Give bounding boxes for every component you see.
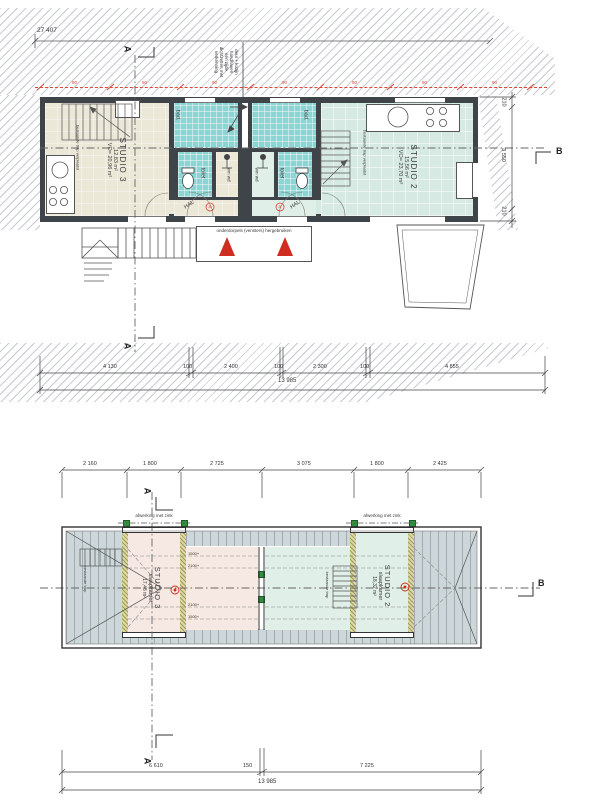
dormer1-window-top bbox=[122, 527, 186, 533]
wmwd1-label: wm wd bbox=[227, 167, 232, 181]
wall-note: deur + kozijn handhaven één zijde dichtz… bbox=[208, 25, 246, 99]
toilet1-room bbox=[178, 152, 212, 197]
zinc-marker bbox=[123, 520, 130, 527]
dim-label: 1 800 bbox=[370, 461, 384, 467]
dim-label: 150 bbox=[243, 763, 252, 769]
dim-label: 3 550 bbox=[500, 148, 506, 162]
section-a-roof-top: A bbox=[142, 488, 152, 495]
wall-note-line: dichtzetten met bbox=[220, 47, 225, 78]
window-right-wall bbox=[472, 163, 479, 197]
dim-label: 4 855 bbox=[445, 364, 459, 370]
room-sub: slaapkamer bbox=[378, 572, 384, 600]
studio2-label: STUDIO 2 15,56 m² VO= 23,70 m² bbox=[391, 122, 425, 212]
red-dim-label: 90 bbox=[492, 80, 497, 85]
dim-label: 100 bbox=[274, 364, 283, 370]
red-dim-label: 90 bbox=[352, 80, 357, 85]
height-mark: 1500+ bbox=[188, 614, 199, 619]
niche-right bbox=[456, 162, 473, 199]
dim-label: 2 425 bbox=[433, 461, 447, 467]
site-dim-label: 27 407 bbox=[37, 27, 57, 34]
entrance-stairs bbox=[82, 228, 196, 281]
wall-note-line: handhaven bbox=[230, 51, 235, 73]
hatch-band-top bbox=[0, 8, 555, 95]
door-hal2 bbox=[277, 216, 307, 222]
hatch-band-bottom bbox=[0, 343, 548, 402]
zinc-note-left: afwerking met zink bbox=[118, 513, 190, 518]
door-hal1 bbox=[185, 216, 215, 222]
wall-marker bbox=[258, 596, 265, 603]
hal2-floor bbox=[252, 200, 316, 216]
roof-end-left bbox=[66, 531, 128, 644]
dim-label: 3 075 bbox=[297, 461, 311, 467]
kitchen-counter-s3 bbox=[46, 155, 75, 214]
room-vo: VO= 20,96 m² bbox=[107, 143, 113, 177]
window-studio2-bottom bbox=[370, 216, 445, 222]
dim-label: 1 800 bbox=[143, 461, 157, 467]
dormer1-window-bottom bbox=[122, 632, 186, 638]
wmwd2-label: wm wd bbox=[255, 167, 260, 181]
wall-note-line: deur + kozijn bbox=[235, 49, 240, 75]
studio3-stair-note: bestaande trap verplaatst bbox=[73, 125, 84, 171]
hal1-floor bbox=[174, 200, 238, 216]
dim-lines-roof-top bbox=[59, 467, 484, 498]
height-mark: 1500+ bbox=[188, 551, 199, 556]
wall-note-line: één zijde bbox=[225, 53, 230, 71]
bad1-room bbox=[174, 103, 238, 148]
entrance-note: onderdorpels (vensters) hergebruiken bbox=[200, 228, 308, 233]
attic3-label: STUDIO 3 slaapkamer 17,48 m² bbox=[138, 548, 166, 628]
dim-label: 2 300 bbox=[313, 364, 327, 370]
dormer2-window-bottom bbox=[350, 632, 414, 638]
room-sub: slaapkamer bbox=[148, 574, 154, 602]
terrace-outline bbox=[397, 225, 484, 309]
toilet1-label: toilet bbox=[199, 168, 205, 179]
roof-stair-note-right: bestaande trap bbox=[323, 565, 333, 605]
hatch-strip-left bbox=[0, 95, 40, 230]
dim-label: 2 400 bbox=[224, 364, 238, 370]
drawing-sheet: 27 407 90 90 90 90 90 90 90 A A B deur +… bbox=[0, 0, 600, 802]
sealed-door-strip bbox=[242, 103, 248, 148]
dormer2-wall-left bbox=[350, 533, 356, 632]
dormer1-wall-left bbox=[122, 533, 128, 632]
dim-label: 4 130 bbox=[103, 364, 117, 370]
red-dim-label: 90 bbox=[282, 80, 287, 85]
dim-label: 100 bbox=[183, 364, 192, 370]
room-name: STUDIO 2 bbox=[410, 145, 419, 190]
red-dim-label: 90 bbox=[422, 80, 427, 85]
red-boundary-line bbox=[35, 87, 547, 88]
door-gap-s2 bbox=[316, 200, 321, 214]
room-name: STUDIO 2 bbox=[384, 565, 393, 608]
roof-end-right bbox=[414, 531, 477, 644]
door-tag1: a bbox=[209, 204, 212, 209]
room-name: STUDIO 3 bbox=[119, 138, 128, 183]
dim-lines-roof-bottom bbox=[59, 748, 484, 794]
wall-note-line: verkenning bbox=[215, 51, 220, 73]
dim-total-label: 13 985 bbox=[256, 779, 278, 785]
bad1-label: bad. bbox=[174, 110, 180, 121]
roof-stair-note-left: bestaande trap bbox=[81, 559, 91, 599]
section-b-roof-label: B bbox=[538, 578, 545, 588]
zinc-note-right: afwerking met zink bbox=[346, 513, 418, 518]
dim-label: 6 610 bbox=[149, 763, 163, 769]
red-dim-label: 90 bbox=[142, 80, 147, 85]
section-a-bottom: A bbox=[122, 343, 132, 350]
section-b-label: B bbox=[556, 146, 563, 156]
dim-label: 210 bbox=[501, 206, 507, 215]
bad2-label: bad. bbox=[302, 110, 308, 121]
zinc-marker bbox=[351, 520, 358, 527]
zinc-marker bbox=[181, 520, 188, 527]
roof-middle-wall bbox=[259, 547, 264, 630]
dormer2-wall-right bbox=[408, 533, 414, 632]
dormer1-wall-right bbox=[180, 533, 186, 632]
height-mark: 2100+ bbox=[188, 602, 199, 607]
studio2-stair-note: bestaande trap verplaatst bbox=[360, 130, 371, 176]
dim-label: 2 725 bbox=[210, 461, 224, 467]
dim-label: 2 160 bbox=[83, 461, 97, 467]
section-a-top: A bbox=[122, 46, 132, 53]
room-area: 15,56 m² bbox=[404, 156, 410, 178]
dormer2-window-top bbox=[350, 527, 414, 533]
room-area: 17,48 m² bbox=[142, 578, 148, 598]
red-dim-label: 90 bbox=[72, 80, 77, 85]
room-area: 18,32 m² bbox=[372, 576, 378, 596]
window-kitchen2 bbox=[395, 98, 445, 103]
zinc-marker bbox=[409, 520, 416, 527]
attic2-label: STUDIO 2 slaapkamer 18,32 m² bbox=[368, 546, 396, 626]
toilet2-label: toilet bbox=[278, 168, 284, 179]
studio3-label: STUDIO 3 12,83 m² VO= 20,96 m² bbox=[100, 115, 134, 205]
wall-marker bbox=[258, 571, 265, 578]
window-bad2 bbox=[270, 98, 300, 103]
door-tag2: a bbox=[279, 204, 282, 209]
dim-label: 7 225 bbox=[360, 763, 374, 769]
door-gap-s3 bbox=[169, 200, 174, 214]
room-vo: VO= 23,70 m² bbox=[398, 150, 404, 184]
dim-label: 100 bbox=[360, 364, 369, 370]
dim-label: 210 bbox=[501, 97, 507, 106]
dim-total-label: 13 985 bbox=[276, 378, 298, 384]
window-studio3-bottom bbox=[128, 216, 166, 222]
height-mark: 2100+ bbox=[188, 563, 199, 568]
room-name: STUDIO 3 bbox=[154, 567, 163, 610]
room-area: 12,83 m² bbox=[113, 149, 119, 171]
